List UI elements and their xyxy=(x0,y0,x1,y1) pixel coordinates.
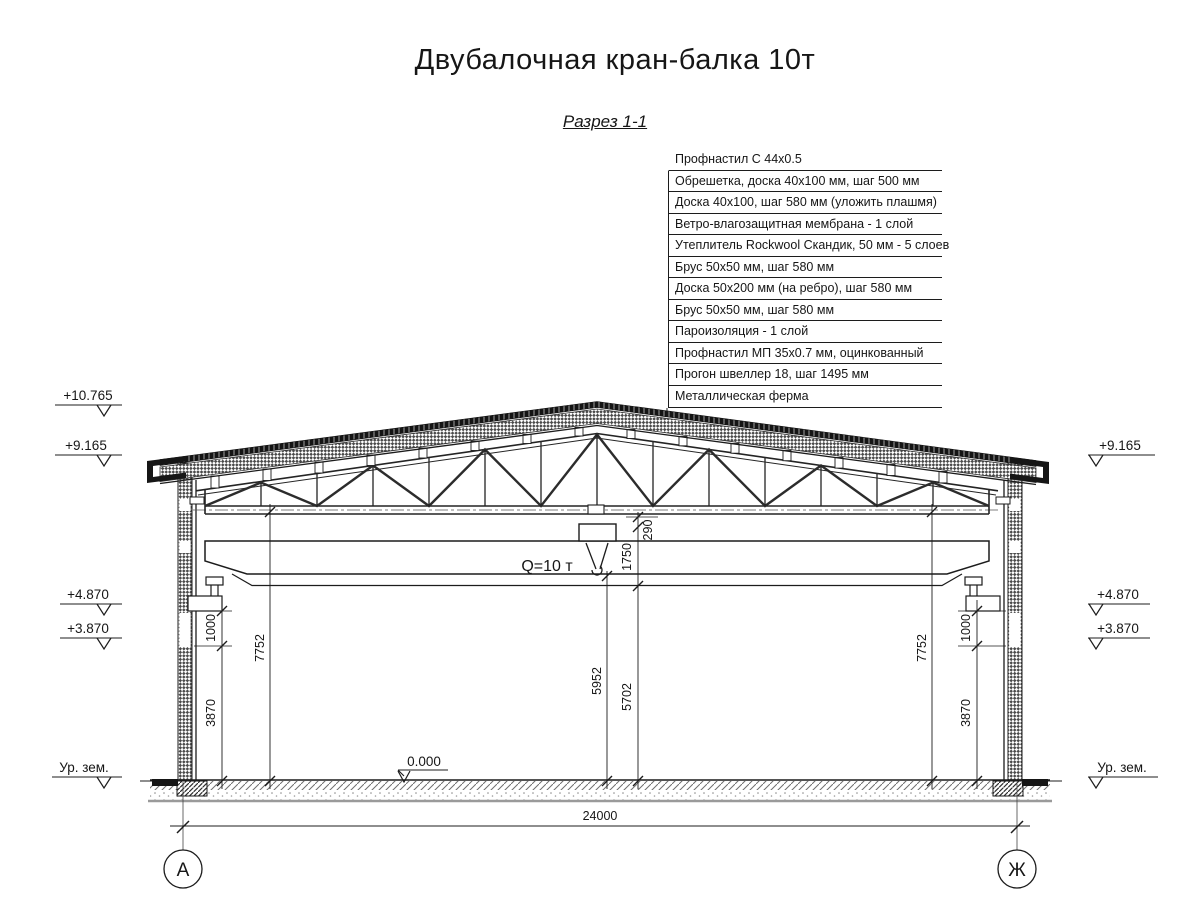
dim-7752-left: 7752 xyxy=(253,634,267,662)
elev-rail-right: +4.870 xyxy=(1097,587,1139,602)
dim-7752-right: 7752 xyxy=(915,634,929,662)
drawing-sheet: Q=10 т 1000 3870 7752 5952 290 1750 xyxy=(0,0,1200,900)
section-label: Разрез 1-1 xyxy=(500,112,710,132)
elevation-mark-corbel-right xyxy=(1088,638,1150,649)
elev-corbel-left: +3.870 xyxy=(67,621,109,636)
callout-row: Прогон швеллер 18, шаг 1495 мм xyxy=(668,364,942,386)
elevation-mark-ridge xyxy=(55,405,122,416)
elev-eaves-left: +9.165 xyxy=(65,438,107,453)
callout-row: Утеплитель Rockwool Скандик, 50 мм - 5 с… xyxy=(668,235,942,257)
axis-letter-left: А xyxy=(177,860,190,881)
wall-panel-joint xyxy=(179,541,190,553)
elev-eaves-right: +9.165 xyxy=(1099,438,1141,453)
axis-letter-right: Ж xyxy=(1008,860,1026,881)
elev-corbel-right: +3.870 xyxy=(1097,621,1139,636)
elevation-mark-rail-left xyxy=(60,604,122,615)
callout-row: Доска 40х100, шаг 580 мм (уложить плашмя… xyxy=(668,192,942,214)
callout-row: Пароизоляция - 1 слой xyxy=(668,321,942,343)
callout-row: Брус 50х50 мм, шаг 580 мм xyxy=(668,257,942,279)
page-title: Двубалочная кран-балка 10т xyxy=(350,44,880,77)
elev-ground-left: Ур. зем. xyxy=(59,760,109,775)
dim-3870-left: 3870 xyxy=(204,699,218,727)
wall-panel-joint xyxy=(1009,613,1020,647)
elev-zero: 0.000 xyxy=(407,754,441,769)
dim-3870-right: 3870 xyxy=(959,699,973,727)
crane-girder-far xyxy=(232,574,962,586)
wall-panel-joint xyxy=(1009,499,1020,511)
elevation-mark-rail-right xyxy=(1088,604,1150,615)
elevation-mark-eaves-right xyxy=(1088,455,1155,466)
wall-panel-joint xyxy=(179,613,190,647)
column-cap-right xyxy=(996,497,1010,504)
monorail-fixing xyxy=(588,505,604,514)
plinth-flashing-right xyxy=(1022,779,1048,786)
elevation-mark-corbel-left xyxy=(60,638,122,649)
dim-290: 290 xyxy=(641,520,655,541)
dim-span: 24000 xyxy=(583,809,618,823)
foundation-left xyxy=(177,781,207,796)
callout-row: Профнастил МП 35х0.7 мм, оцинкованный xyxy=(668,343,942,365)
dim-5952: 5952 xyxy=(590,667,604,695)
wall-left xyxy=(178,463,204,781)
floor-slab xyxy=(140,779,1062,801)
crane-support-left xyxy=(188,577,223,611)
dim-1750: 1750 xyxy=(620,543,634,571)
wall-panel-joint xyxy=(179,499,190,511)
callout-row: Металлическая ферма xyxy=(668,386,942,408)
elev-ground-right: Ур. зем. xyxy=(1097,760,1147,775)
crane-support-right xyxy=(965,577,1000,611)
elevation-mark-eaves-left xyxy=(55,455,122,466)
crane-girder xyxy=(205,541,989,574)
axis-bubble-left: А xyxy=(164,850,202,888)
crane-capacity-label: Q=10 т xyxy=(521,558,573,575)
plinth-flashing-left xyxy=(152,779,178,786)
dim-5702: 5702 xyxy=(620,683,634,711)
crane-trolley xyxy=(579,524,616,541)
crane-bridge: Q=10 т xyxy=(188,524,1000,611)
callout-row: Брус 50х50 мм, шаг 580 мм xyxy=(668,300,942,322)
column-cap-left xyxy=(190,497,204,504)
elev-ridge: +10.765 xyxy=(63,388,112,403)
dim-1000-left: 1000 xyxy=(204,614,218,642)
callout-row: Профнастил С 44х0.5 xyxy=(668,149,942,171)
section-drawing: Q=10 т 1000 3870 7752 5952 290 1750 xyxy=(0,0,1200,900)
foundation-right xyxy=(993,781,1023,796)
elevation-mark-ground-right xyxy=(1088,777,1158,788)
callout-row: Доска 50х200 мм (на ребро), шаг 580 мм xyxy=(668,278,942,300)
elevation-mark-ground-left xyxy=(52,777,122,788)
roof xyxy=(147,402,1049,485)
dim-1000-right: 1000 xyxy=(959,614,973,642)
elev-rail-left: +4.870 xyxy=(67,587,109,602)
wall-right xyxy=(996,463,1022,781)
wall-panel-joint xyxy=(1009,541,1020,553)
axis-bubble-right: Ж xyxy=(998,850,1036,888)
roof-callout-table: Профнастил С 44х0.5 Обрешетка, доска 40х… xyxy=(668,149,942,408)
callout-row: Обрешетка, доска 40х100 мм, шаг 500 мм xyxy=(668,171,942,193)
callout-row: Ветро-влагозащитная мембрана - 1 слой xyxy=(668,214,942,236)
